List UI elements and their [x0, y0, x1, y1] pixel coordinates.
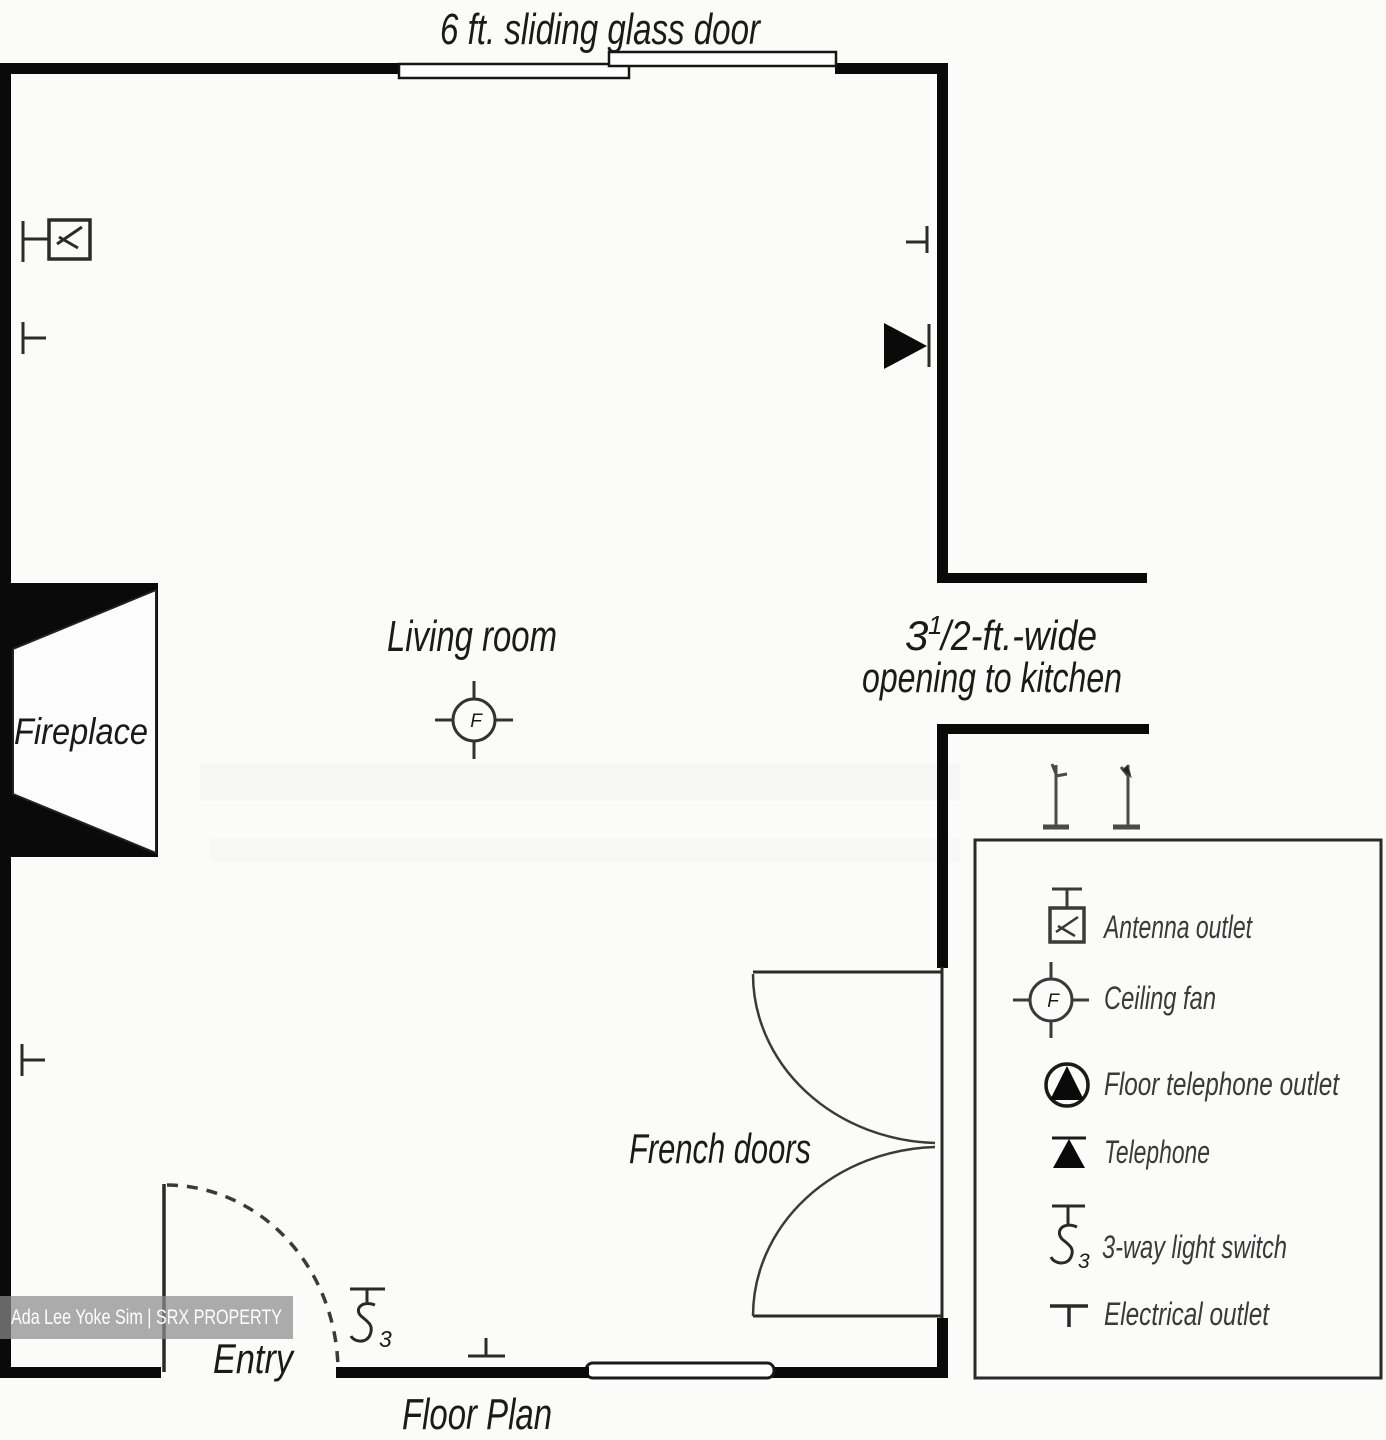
svg-text:3: 3: [379, 1326, 392, 1352]
svg-text:Floor Plan: Floor Plan: [402, 1390, 552, 1439]
svg-text:3: 3: [1078, 1250, 1090, 1273]
svg-text:F: F: [470, 711, 483, 732]
svg-text:3-way light switch: 3-way light switch: [1102, 1229, 1287, 1265]
svg-text:Fireplace: Fireplace: [14, 711, 148, 752]
svg-text:Ceiling fan: Ceiling fan: [1104, 980, 1216, 1016]
svg-text:Ada Lee Yoke Sim | SRX PROPERT: Ada Lee Yoke Sim | SRX PROPERTY: [11, 1306, 282, 1329]
svg-text:Telephone: Telephone: [1104, 1134, 1210, 1170]
svg-text:Electrical outlet: Electrical outlet: [1104, 1296, 1270, 1332]
svg-text:6 ft. sliding glass door: 6 ft. sliding glass door: [440, 5, 762, 54]
svg-text:French doors: French doors: [629, 1125, 811, 1172]
svg-text:Antenna outlet: Antenna outlet: [1103, 909, 1253, 945]
svg-text:/2-ft.-wide: /2-ft.-wide: [938, 612, 1097, 659]
svg-text:Living room: Living room: [387, 612, 557, 661]
svg-text:Entry: Entry: [213, 1335, 295, 1382]
svg-text:3: 3: [905, 612, 928, 659]
svg-text:opening to kitchen: opening to kitchen: [862, 654, 1122, 701]
svg-text:F: F: [1047, 991, 1060, 1012]
svg-text:Floor telephone outlet: Floor telephone outlet: [1104, 1066, 1340, 1102]
